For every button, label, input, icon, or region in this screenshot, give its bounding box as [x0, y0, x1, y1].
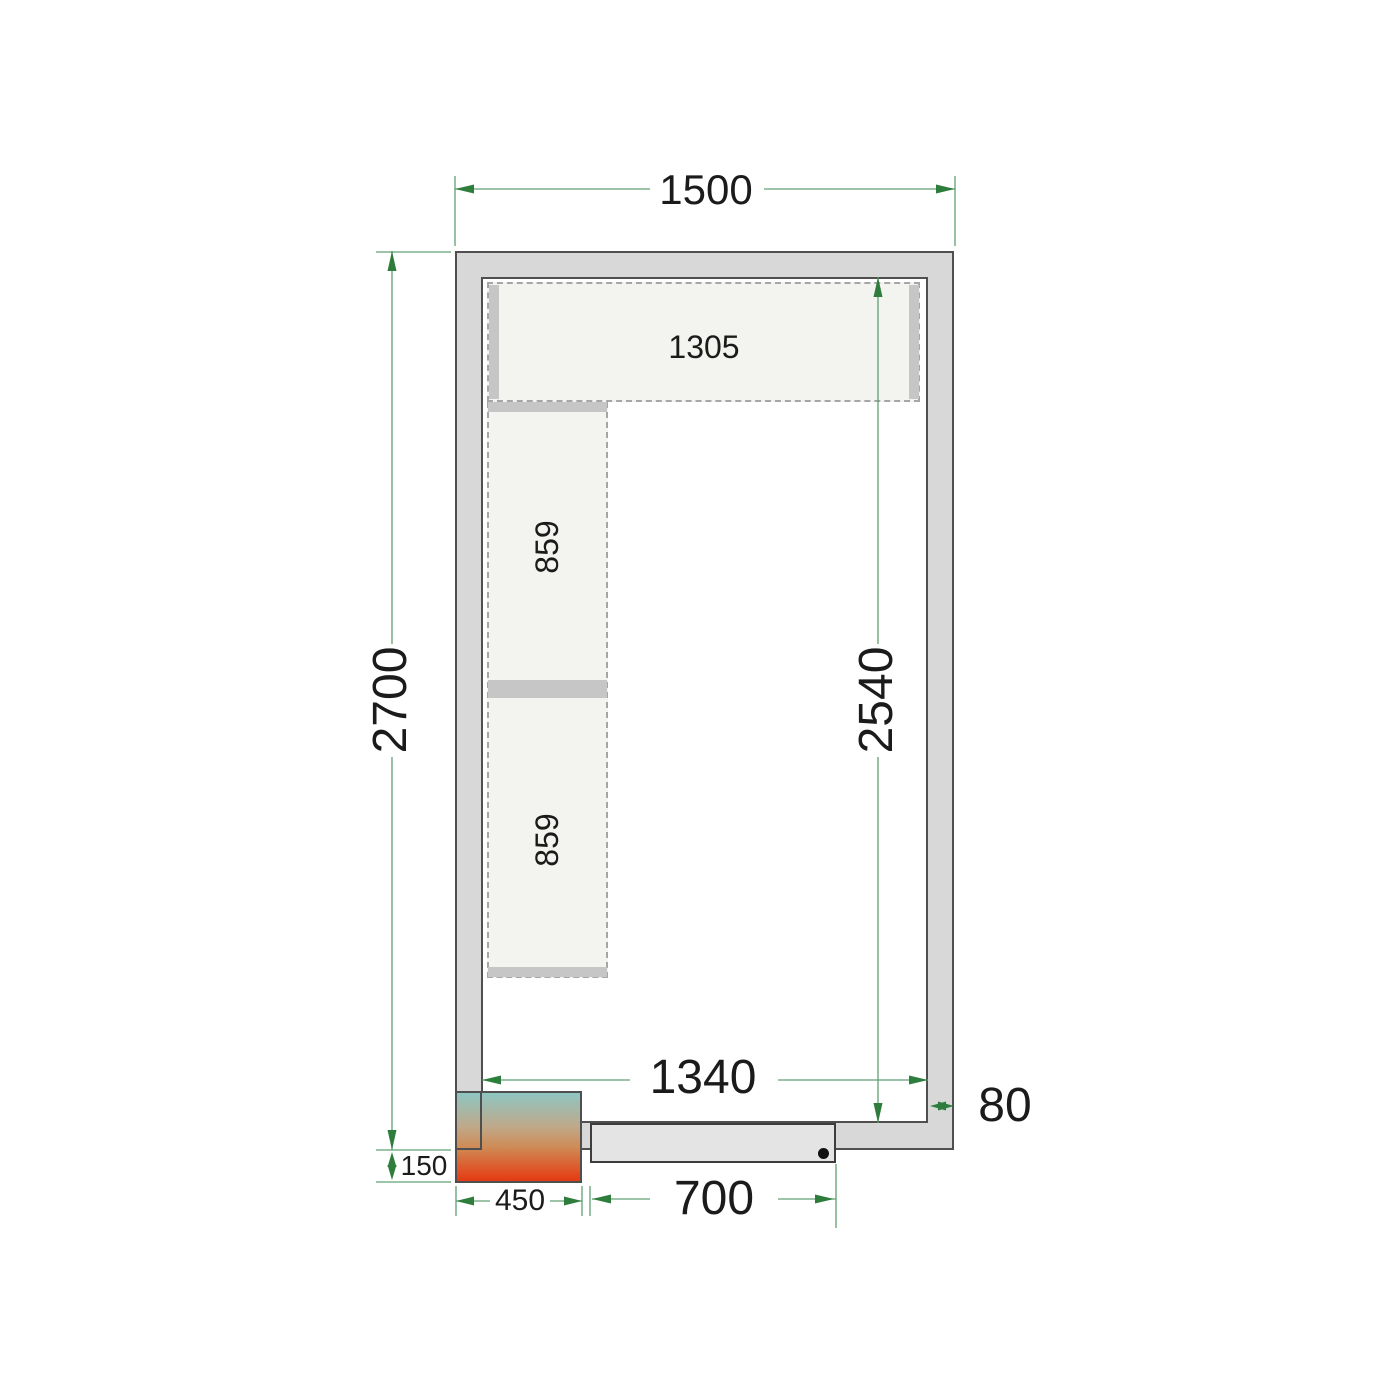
dim-condenser-offset-label: 150	[401, 1152, 448, 1180]
wall-edge-overlay	[455, 1148, 482, 1150]
shelf-support-bar	[489, 285, 499, 399]
dim-overall-height-label: 2700	[367, 647, 415, 754]
shelf-top-length-label: 1305	[668, 331, 739, 363]
dim-inner-width-label: 1340	[650, 1054, 757, 1102]
wall-edge-overlay	[480, 1091, 482, 1150]
door-handle-dot	[818, 1148, 829, 1159]
dim-overall-width-label: 1500	[659, 169, 752, 211]
dim-wall-thickness-label: 80	[978, 1082, 1031, 1130]
shelf-support-bar	[488, 402, 607, 412]
shelf-left-lower-length-label: 859	[531, 813, 563, 866]
shelf-left-upper-length-label: 859	[531, 520, 563, 573]
shelf-support-bar	[488, 967, 607, 977]
shelf-support-bar	[909, 285, 919, 399]
cold-room-plan-canvas: 1500 2700 2540 1340 80 150 450 700 1305 …	[0, 0, 1400, 1400]
shelf-support-bar	[488, 680, 607, 698]
door-leaf	[590, 1123, 836, 1163]
dim-condenser-width-label: 450	[495, 1186, 545, 1216]
dim-inner-height-label: 2540	[853, 647, 901, 754]
cooling-unit-gradient-box	[455, 1091, 582, 1183]
dim-door-width-label: 700	[674, 1175, 754, 1223]
